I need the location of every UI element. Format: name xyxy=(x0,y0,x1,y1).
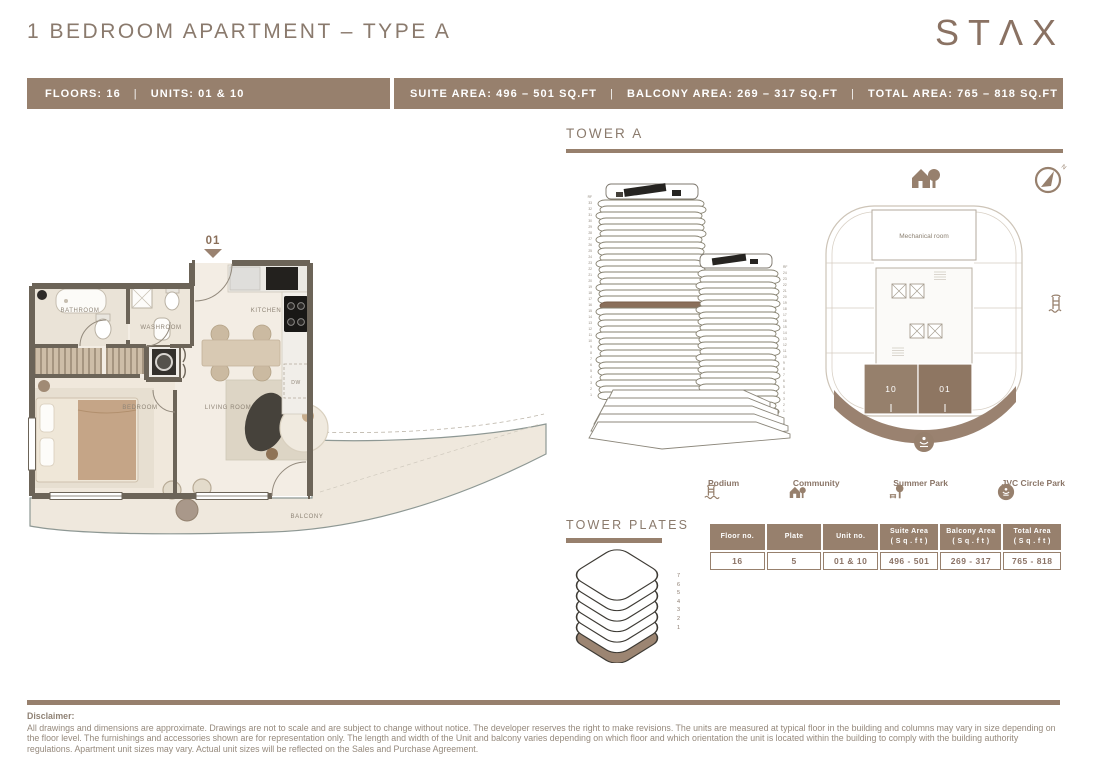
svg-text:RF: RF xyxy=(783,265,787,269)
tower-plates-rule xyxy=(566,538,662,543)
svg-text:6: 6 xyxy=(590,363,592,367)
svg-text:15: 15 xyxy=(783,325,787,329)
compass-n-label: N xyxy=(1060,164,1067,171)
separator: | xyxy=(134,88,138,100)
floor-plan: BATHROOM WASHROOM KITCHEN BEDROOM LIVING… xyxy=(20,228,550,600)
svg-text:31: 31 xyxy=(588,213,592,217)
room-label-balcony: BALCONY xyxy=(291,514,324,520)
separator: | xyxy=(851,88,855,100)
room-label-washroom: WASHROOM xyxy=(140,325,181,331)
svg-text:33: 33 xyxy=(588,201,592,205)
disclaimer-text: All drawings and dimensions are approxim… xyxy=(27,723,1056,754)
unit-area-table: Floor no.PlateUnit no.Suite Area ( S q .… xyxy=(708,522,1063,572)
community-icon xyxy=(912,169,940,188)
tower-a-heading: TOWER A xyxy=(566,126,643,141)
svg-text:14: 14 xyxy=(783,331,787,335)
svg-text:5: 5 xyxy=(783,385,785,389)
bed xyxy=(34,380,154,488)
svg-text:24: 24 xyxy=(783,271,787,275)
podium-icon xyxy=(1049,295,1061,312)
compass-icon: N xyxy=(1036,164,1067,192)
table-cell: 496 - 501 xyxy=(880,552,938,570)
legend-item: Podium xyxy=(703,478,739,488)
units-value: UNITS: 01 & 10 xyxy=(151,88,245,100)
svg-text:18: 18 xyxy=(783,307,787,311)
table-header-cell: Unit no. xyxy=(823,524,877,550)
svg-text:1: 1 xyxy=(590,393,592,397)
svg-text:29: 29 xyxy=(588,225,592,229)
room-label-living: LIVING ROOM xyxy=(205,405,252,411)
separator: | xyxy=(610,88,614,100)
plate-level-numbers: 7 6 5 4 3 2 1 xyxy=(677,572,680,632)
table-cell: 269 - 317 xyxy=(940,552,1001,570)
svg-text:2: 2 xyxy=(590,387,592,391)
svg-text:19: 19 xyxy=(588,285,592,289)
svg-text:12: 12 xyxy=(783,343,787,347)
svg-text:11: 11 xyxy=(783,349,787,353)
svg-text:9: 9 xyxy=(590,345,592,349)
table-header-cell: Suite Area ( S q . f t ) xyxy=(880,524,938,550)
svg-text:8: 8 xyxy=(590,351,592,355)
table-header-row: Floor no.PlateUnit no.Suite Area ( S q .… xyxy=(710,524,1061,550)
legend-item: Summer Park xyxy=(888,478,948,488)
svg-text:13: 13 xyxy=(783,337,787,341)
table-cell: 16 xyxy=(710,552,765,570)
svg-text:24: 24 xyxy=(588,255,592,259)
svg-text:1: 1 xyxy=(783,409,785,413)
floor-plate-diagram: N Mechanical room xyxy=(810,158,1072,463)
svg-text:3: 3 xyxy=(590,381,592,385)
legend-item: Community xyxy=(788,478,840,488)
closets xyxy=(34,348,144,374)
table-header-cell: Plate xyxy=(767,524,822,550)
svg-text:22: 22 xyxy=(588,267,592,271)
svg-text:17: 17 xyxy=(588,297,592,301)
table-cell: 765 - 818 xyxy=(1003,552,1061,570)
entry-arrow-icon xyxy=(204,249,222,258)
svg-text:27: 27 xyxy=(588,237,592,241)
svg-text:10: 10 xyxy=(783,355,787,359)
tower-a-rule xyxy=(566,149,1063,153)
svg-text:9: 9 xyxy=(783,361,785,365)
room-label-kitchen: KITCHEN xyxy=(251,308,282,314)
svg-text:18: 18 xyxy=(588,291,592,295)
table-header-cell: Total Area ( S q . f t ) xyxy=(1003,524,1061,550)
disclaimer-label: Disclaimer: xyxy=(27,711,1065,722)
svg-text:10: 10 xyxy=(588,339,592,343)
suite-area-value: SUITE AREA: 496 – 501 SQ.FT xyxy=(410,88,597,100)
entry-marker: 01 xyxy=(204,235,222,258)
svg-text:8: 8 xyxy=(783,367,785,371)
table-header-cell: Balcony Area ( S q . f t ) xyxy=(940,524,1001,550)
svg-text:23: 23 xyxy=(783,277,787,281)
towers-illustration: RF33323130292827262524232221201918171615… xyxy=(558,158,793,463)
tower-plates-heading: TOWER PLATES xyxy=(566,518,689,532)
tower-b-floor-numbers: RF24232221201918171615141312111098765432… xyxy=(783,265,787,413)
mechanical-room-label: Mechanical room xyxy=(899,233,949,240)
svg-text:25: 25 xyxy=(588,249,592,253)
floors-value: FLOORS: 16 xyxy=(45,88,121,100)
dishwasher-label: DW xyxy=(291,380,301,386)
svg-text:5: 5 xyxy=(590,369,592,373)
washer xyxy=(148,346,185,378)
svg-text:20: 20 xyxy=(783,295,787,299)
svg-text:17: 17 xyxy=(783,313,787,317)
table-cell: 5 xyxy=(767,552,822,570)
svg-text:28: 28 xyxy=(588,231,592,235)
svg-text:7: 7 xyxy=(783,373,785,377)
svg-text:7: 7 xyxy=(590,357,592,361)
map-legend: PodiumCommunitySummer ParkJVC Circle Par… xyxy=(703,478,1065,488)
svg-text:16: 16 xyxy=(588,303,592,307)
svg-text:26: 26 xyxy=(588,243,592,247)
jvc-circle-park-icon xyxy=(914,432,934,452)
page-title: 1 BEDROOM APARTMENT – TYPE A xyxy=(27,20,451,44)
podium-terraces xyxy=(589,390,790,449)
room-label-bathroom: BATHROOM xyxy=(60,308,99,314)
footer-rule xyxy=(27,700,1060,705)
disclaimer: Disclaimer: All drawings and dimensions … xyxy=(27,711,1065,754)
svg-text:RF: RF xyxy=(588,195,592,199)
svg-text:13: 13 xyxy=(588,321,592,325)
unit-01-label: 01 xyxy=(939,384,950,394)
tower-a-floor-numbers: RF33323130292827262524232221201918171615… xyxy=(588,195,593,397)
svg-text:2: 2 xyxy=(783,403,785,407)
table-header-cell: Floor no. xyxy=(710,524,765,550)
svg-text:21: 21 xyxy=(783,289,787,293)
svg-text:3: 3 xyxy=(783,397,785,401)
unit-10-label: 10 xyxy=(885,384,896,394)
room-label-bedroom: BEDROOM xyxy=(122,405,157,411)
svg-text:12: 12 xyxy=(588,327,592,331)
svg-text:16: 16 xyxy=(783,319,787,323)
table-cell: 01 & 10 xyxy=(823,552,877,570)
brochure-page: 1 BEDROOM APARTMENT – TYPE A STΛX FLOORS… xyxy=(0,0,1093,769)
balcony-area-value: BALCONY AREA: 269 – 317 SQ.FT xyxy=(627,88,838,100)
svg-text:11: 11 xyxy=(589,333,593,337)
svg-text:32: 32 xyxy=(588,207,592,211)
svg-text:23: 23 xyxy=(588,261,592,265)
svg-text:6: 6 xyxy=(783,379,785,383)
tower-plates-diagram xyxy=(560,548,680,663)
svg-text:4: 4 xyxy=(590,375,592,379)
total-area-value: TOTAL AREA: 765 – 818 SQ.FT xyxy=(868,88,1058,100)
svg-text:15: 15 xyxy=(588,309,592,313)
brand-logo: STΛX xyxy=(935,12,1065,54)
table-body: 16501 & 10496 - 501269 - 317765 - 818 xyxy=(710,552,1061,570)
info-bar-right: SUITE AREA: 496 – 501 SQ.FT | BALCONY AR… xyxy=(394,78,1063,109)
info-bar-left: FLOORS: 16 | UNITS: 01 & 10 xyxy=(27,78,390,109)
legend-item: JVC Circle Park xyxy=(997,478,1065,488)
core xyxy=(876,268,972,364)
tower-a-stack xyxy=(596,200,706,400)
svg-text:14: 14 xyxy=(588,315,592,319)
svg-text:21: 21 xyxy=(588,273,592,277)
entry-unit-number: 01 xyxy=(206,235,221,247)
table-row: 16501 & 10496 - 501269 - 317765 - 818 xyxy=(710,552,1061,570)
svg-text:22: 22 xyxy=(783,283,787,287)
svg-text:30: 30 xyxy=(588,219,592,223)
svg-text:20: 20 xyxy=(588,279,592,283)
svg-text:4: 4 xyxy=(783,391,785,395)
svg-text:19: 19 xyxy=(783,301,787,305)
